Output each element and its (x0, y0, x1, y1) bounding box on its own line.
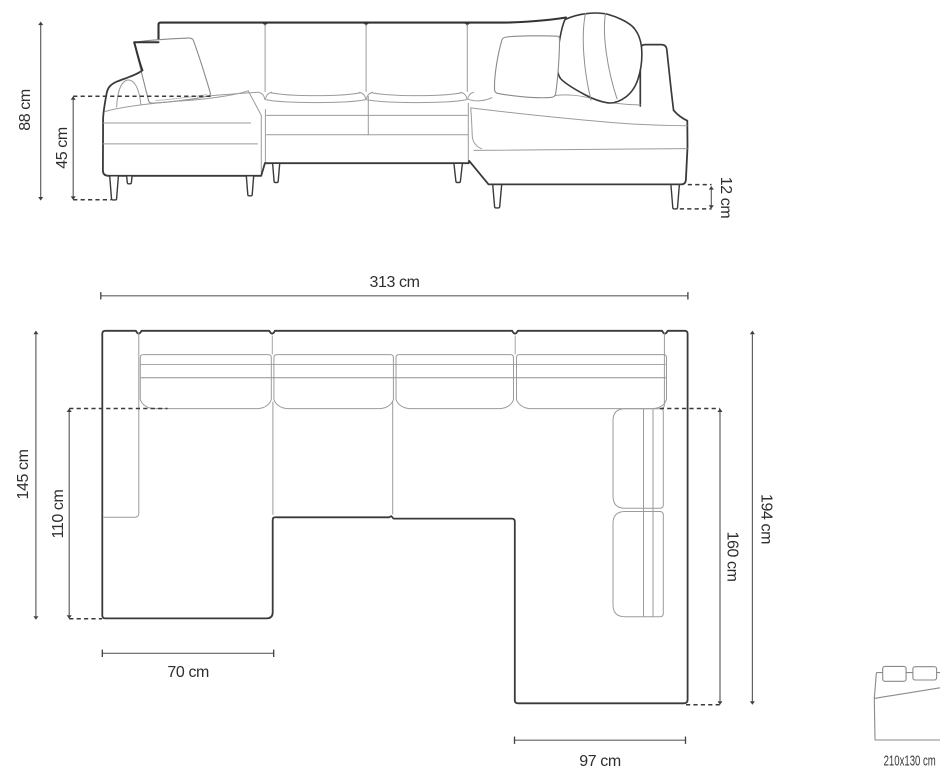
svg-text:160 cm: 160 cm (723, 531, 740, 581)
svg-text:70 cm: 70 cm (167, 664, 209, 681)
svg-text:12 cm: 12 cm (717, 177, 734, 219)
svg-text:145 cm: 145 cm (15, 449, 32, 499)
svg-text:194 cm: 194 cm (757, 494, 774, 544)
svg-text:313 cm: 313 cm (369, 274, 419, 291)
svg-text:110 cm: 110 cm (50, 489, 67, 538)
svg-text:210x130 cm: 210x130 cm (884, 753, 936, 769)
svg-text:88 cm: 88 cm (17, 89, 34, 131)
svg-text:45 cm: 45 cm (54, 127, 71, 169)
svg-text:97 cm: 97 cm (579, 753, 621, 770)
